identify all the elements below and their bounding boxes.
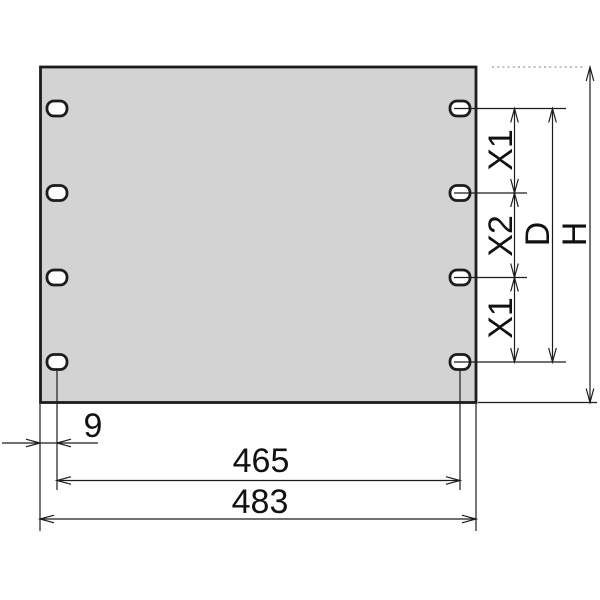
mounting-slot-left-2	[47, 186, 67, 201]
mounting-slot-left-1	[47, 101, 67, 116]
technical-drawing-rack-panel: X1 X2 X1 D H 9 465 483	[0, 0, 600, 600]
mounting-slot-left-3	[47, 270, 67, 285]
mounting-slot-left-4	[47, 355, 67, 370]
panel-face	[41, 67, 477, 403]
drawing-geometry	[0, 0, 600, 600]
